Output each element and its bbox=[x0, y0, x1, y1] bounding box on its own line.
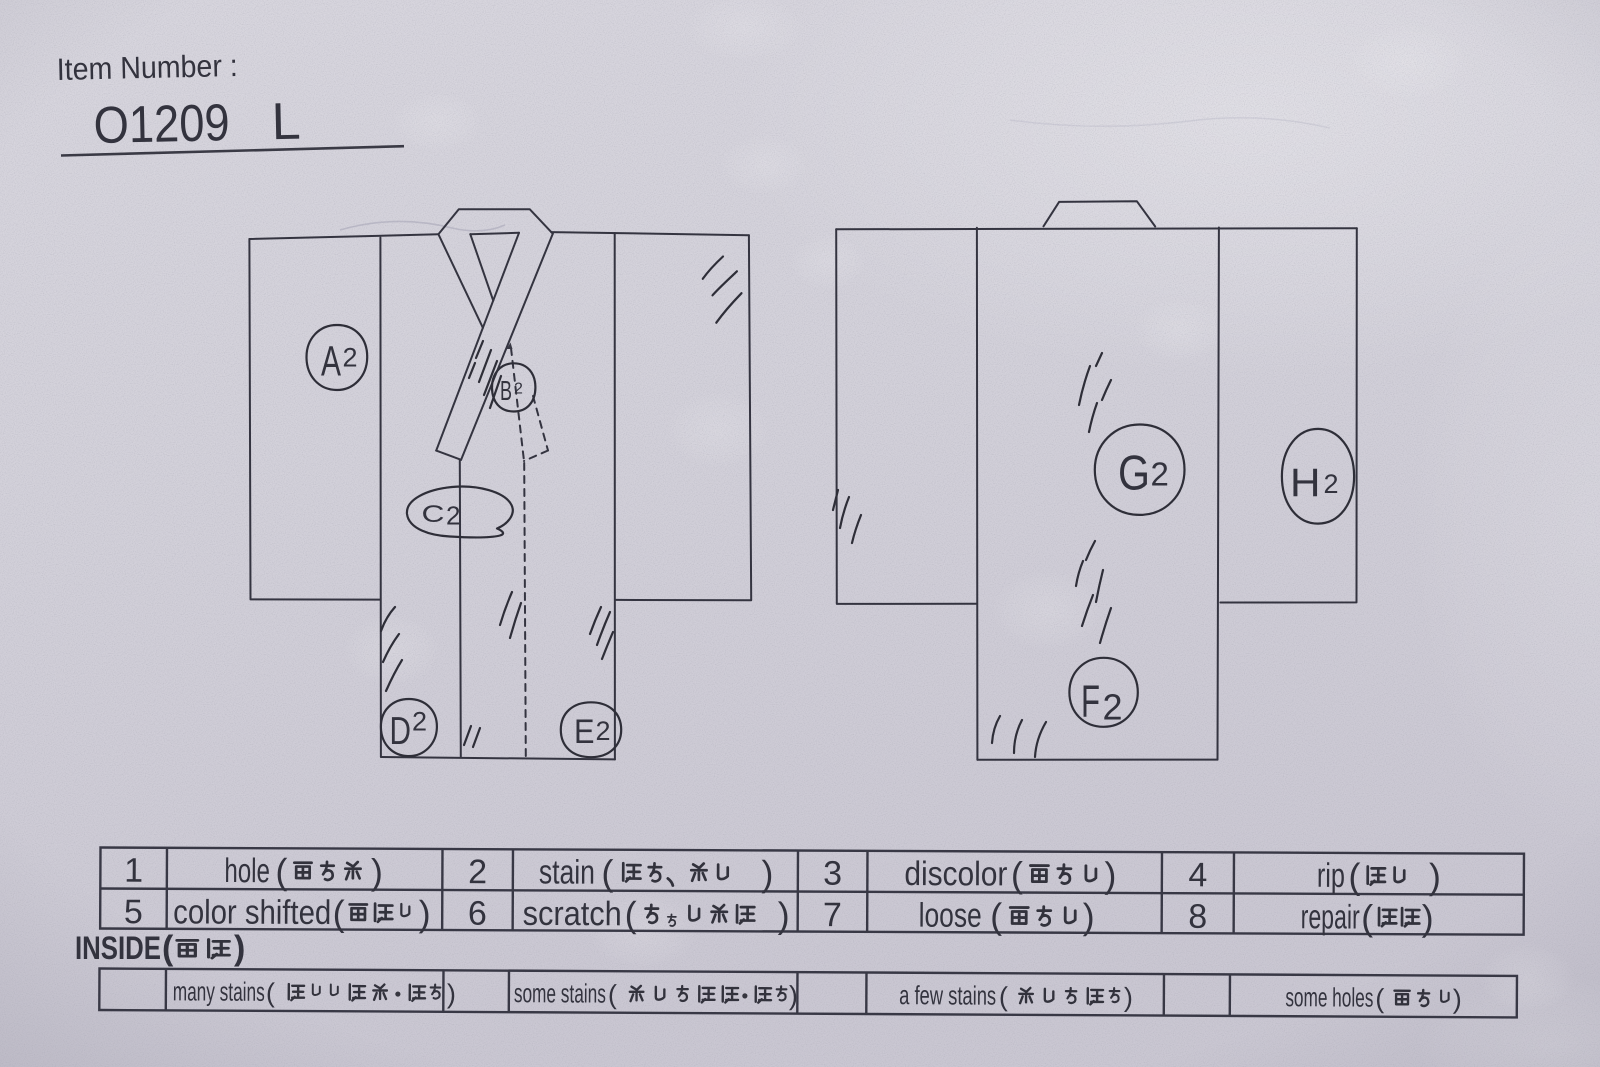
svg-text:a few stains: a few stains bbox=[899, 980, 996, 1011]
svg-text:(: ( bbox=[1361, 897, 1373, 938]
svg-text:2: 2 bbox=[446, 501, 460, 531]
svg-text:): ) bbox=[778, 894, 790, 935]
svg-text:loose: loose bbox=[919, 897, 982, 935]
svg-text:2: 2 bbox=[514, 381, 523, 398]
svg-text:4: 4 bbox=[1188, 856, 1207, 894]
svg-text:color shifted: color shifted bbox=[173, 893, 331, 932]
svg-text:G: G bbox=[1118, 447, 1150, 501]
svg-text:Item Number :: Item Number : bbox=[56, 48, 238, 87]
svg-text:6: 6 bbox=[468, 895, 487, 933]
svg-text:some stains: some stains bbox=[514, 978, 606, 1008]
svg-text:): ) bbox=[1453, 984, 1462, 1014]
svg-text:E: E bbox=[574, 713, 595, 751]
svg-text:): ) bbox=[1124, 982, 1133, 1012]
svg-text:repair: repair bbox=[1301, 898, 1360, 936]
svg-text:2: 2 bbox=[1103, 687, 1123, 728]
svg-text:INSIDE: INSIDE bbox=[75, 930, 161, 966]
svg-text:(: ( bbox=[1348, 855, 1360, 896]
svg-text:(: ( bbox=[266, 978, 275, 1008]
svg-text:): ) bbox=[447, 979, 456, 1009]
svg-text:): ) bbox=[761, 853, 773, 894]
svg-text:1: 1 bbox=[124, 852, 143, 890]
svg-text:H: H bbox=[1290, 461, 1321, 505]
svg-text:C: C bbox=[422, 501, 445, 528]
svg-text:B: B bbox=[500, 375, 512, 406]
svg-text:2: 2 bbox=[412, 707, 427, 737]
svg-text:(: ( bbox=[1011, 854, 1023, 895]
svg-text:2: 2 bbox=[1324, 469, 1339, 499]
svg-text:rip: rip bbox=[1317, 857, 1345, 895]
svg-text:): ) bbox=[1104, 854, 1116, 895]
svg-text:(: ( bbox=[1375, 984, 1384, 1014]
svg-text:(: ( bbox=[275, 851, 287, 892]
svg-text:): ) bbox=[1429, 856, 1441, 897]
svg-text:discolor: discolor bbox=[904, 855, 1007, 893]
svg-text:2: 2 bbox=[468, 853, 487, 891]
svg-text:2: 2 bbox=[1151, 456, 1169, 493]
svg-text:8: 8 bbox=[1188, 898, 1207, 936]
svg-text:2: 2 bbox=[343, 343, 358, 373]
svg-text:O1209: O1209 bbox=[93, 94, 230, 155]
svg-text:): ) bbox=[371, 851, 383, 892]
svg-text:(: ( bbox=[625, 894, 637, 935]
svg-text:D: D bbox=[390, 710, 412, 753]
svg-text:7: 7 bbox=[823, 896, 842, 934]
svg-text:): ) bbox=[1422, 897, 1434, 938]
svg-text:5: 5 bbox=[124, 893, 143, 931]
svg-text:): ) bbox=[419, 893, 431, 934]
svg-text:): ) bbox=[234, 930, 245, 968]
svg-text:stain: stain bbox=[539, 853, 595, 891]
svg-text:(: ( bbox=[608, 980, 617, 1010]
svg-text:F: F bbox=[1081, 676, 1100, 727]
svg-text:3: 3 bbox=[823, 855, 842, 893]
svg-text:): ) bbox=[1083, 896, 1095, 937]
svg-text:(: ( bbox=[990, 895, 1002, 936]
svg-text:A: A bbox=[321, 338, 341, 386]
svg-text:some holes: some holes bbox=[1285, 982, 1373, 1012]
svg-text:L: L bbox=[271, 93, 301, 152]
svg-text:(: ( bbox=[333, 893, 345, 934]
svg-text:2: 2 bbox=[596, 716, 611, 746]
svg-text:many stains: many stains bbox=[173, 976, 265, 1006]
svg-text:(: ( bbox=[999, 982, 1008, 1012]
svg-text:hole: hole bbox=[224, 852, 270, 890]
svg-text:scratch: scratch bbox=[523, 895, 622, 933]
svg-text:(: ( bbox=[601, 852, 613, 893]
svg-text:(: ( bbox=[162, 930, 174, 968]
svg-text:): ) bbox=[789, 981, 798, 1011]
